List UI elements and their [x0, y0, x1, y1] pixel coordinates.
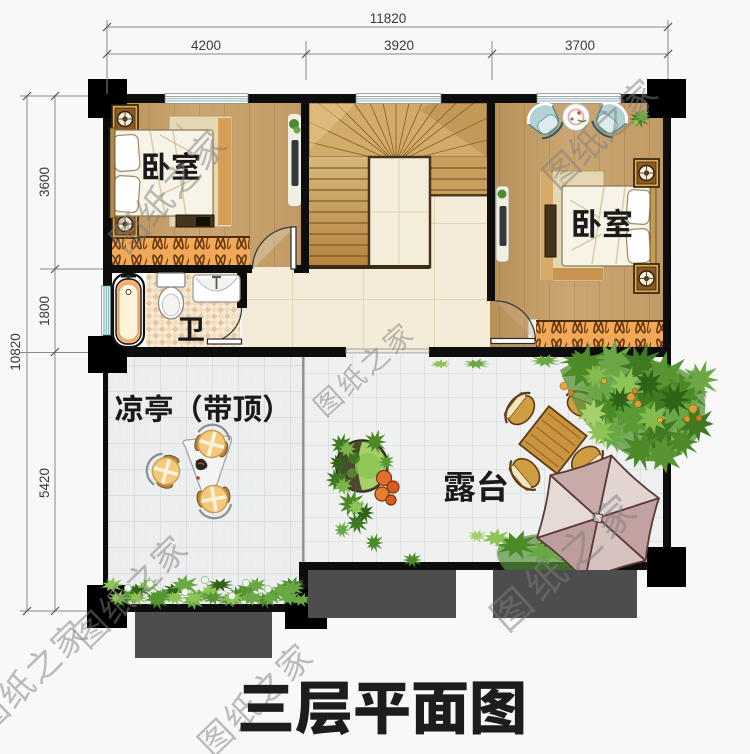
svg-text:3600: 3600: [37, 167, 52, 197]
svg-text:5420: 5420: [37, 468, 52, 498]
svg-text:11820: 11820: [370, 11, 407, 26]
svg-text:1800: 1800: [37, 296, 52, 326]
svg-text:3700: 3700: [565, 38, 595, 53]
svg-text:10820: 10820: [8, 333, 23, 371]
svg-text:3920: 3920: [384, 38, 414, 53]
svg-text:4200: 4200: [191, 38, 221, 53]
